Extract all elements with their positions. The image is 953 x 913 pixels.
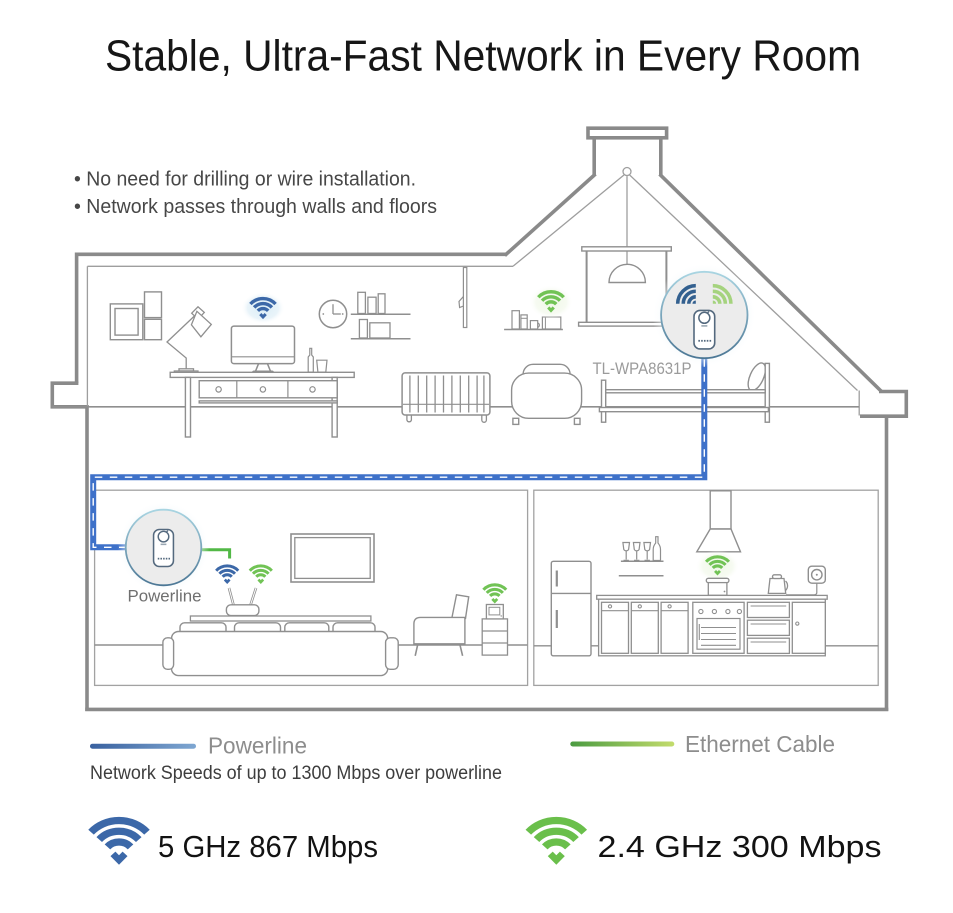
svg-text:2.4 GHz 300 Mbps: 2.4 GHz 300 Mbps bbox=[598, 830, 882, 864]
svg-text:Stable, Ultra-Fast Network in: Stable, Ultra-Fast Network in Every Room bbox=[105, 33, 861, 81]
svg-text:Powerline: Powerline bbox=[208, 733, 307, 759]
svg-text:Powerline: Powerline bbox=[128, 587, 202, 606]
svg-text:Network Speeds of up to 1300 M: Network Speeds of up to 1300 Mbps over p… bbox=[90, 763, 502, 784]
svg-text:• No need for drilling or wire: • No need for drilling or wire installat… bbox=[74, 169, 416, 191]
svg-text:TL-WPA8631P: TL-WPA8631P bbox=[593, 359, 692, 378]
svg-text:Ethernet Cable: Ethernet Cable bbox=[685, 731, 835, 757]
svg-text:• Network passes through walls: • Network passes through walls and floor… bbox=[74, 196, 437, 218]
svg-text:5 GHz 867 Mbps: 5 GHz 867 Mbps bbox=[158, 830, 378, 864]
